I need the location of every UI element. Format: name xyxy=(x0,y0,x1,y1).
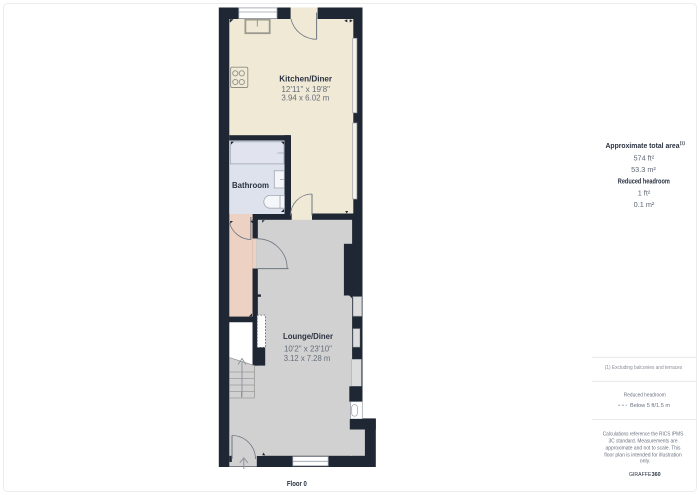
svg-text:3.12 x 7.28 m: 3.12 x 7.28 m xyxy=(284,354,331,363)
svg-text:3C standard. Measurements are: 3C standard. Measurements are xyxy=(609,438,678,444)
svg-text:Lounge/Diner: Lounge/Diner xyxy=(283,331,334,341)
svg-text:approximate and not to scale.: approximate and not to scale. This xyxy=(606,445,681,451)
svg-text:3.94 x 6.02 m: 3.94 x 6.02 m xyxy=(281,94,329,103)
svg-text:360: 360 xyxy=(652,472,662,478)
svg-text:GIRAFFE: GIRAFFE xyxy=(629,472,651,478)
svg-text:1 ft²: 1 ft² xyxy=(638,189,651,198)
svg-text:floor plan is intended for ill: floor plan is intended for illustration xyxy=(604,452,682,458)
svg-text:Reduced headroom: Reduced headroom xyxy=(618,179,670,186)
svg-text:574 ft²: 574 ft² xyxy=(633,153,654,162)
svg-text:(1) Excluding balconies and te: (1) Excluding balconies and terraces xyxy=(605,365,683,371)
svg-text:0.1 m²: 0.1 m² xyxy=(634,200,655,209)
svg-text:(1): (1) xyxy=(680,140,686,145)
svg-text:53.3 m²: 53.3 m² xyxy=(631,165,656,174)
svg-text:Kitchen/Diner: Kitchen/Diner xyxy=(279,74,332,84)
svg-text:10'2" x 23'10": 10'2" x 23'10" xyxy=(284,344,332,353)
svg-text:Reduced headroom: Reduced headroom xyxy=(624,393,666,399)
svg-text:Below 5 ft/1.5 m: Below 5 ft/1.5 m xyxy=(630,403,670,409)
svg-text:Calculations reference the RIC: Calculations reference the RICS IPMS xyxy=(603,431,684,437)
svg-text:Approximate total area: Approximate total area xyxy=(606,141,681,150)
svg-text:Floor 0: Floor 0 xyxy=(287,479,307,488)
svg-text:only.: only. xyxy=(640,459,651,465)
svg-text:Bathroom: Bathroom xyxy=(232,180,269,190)
